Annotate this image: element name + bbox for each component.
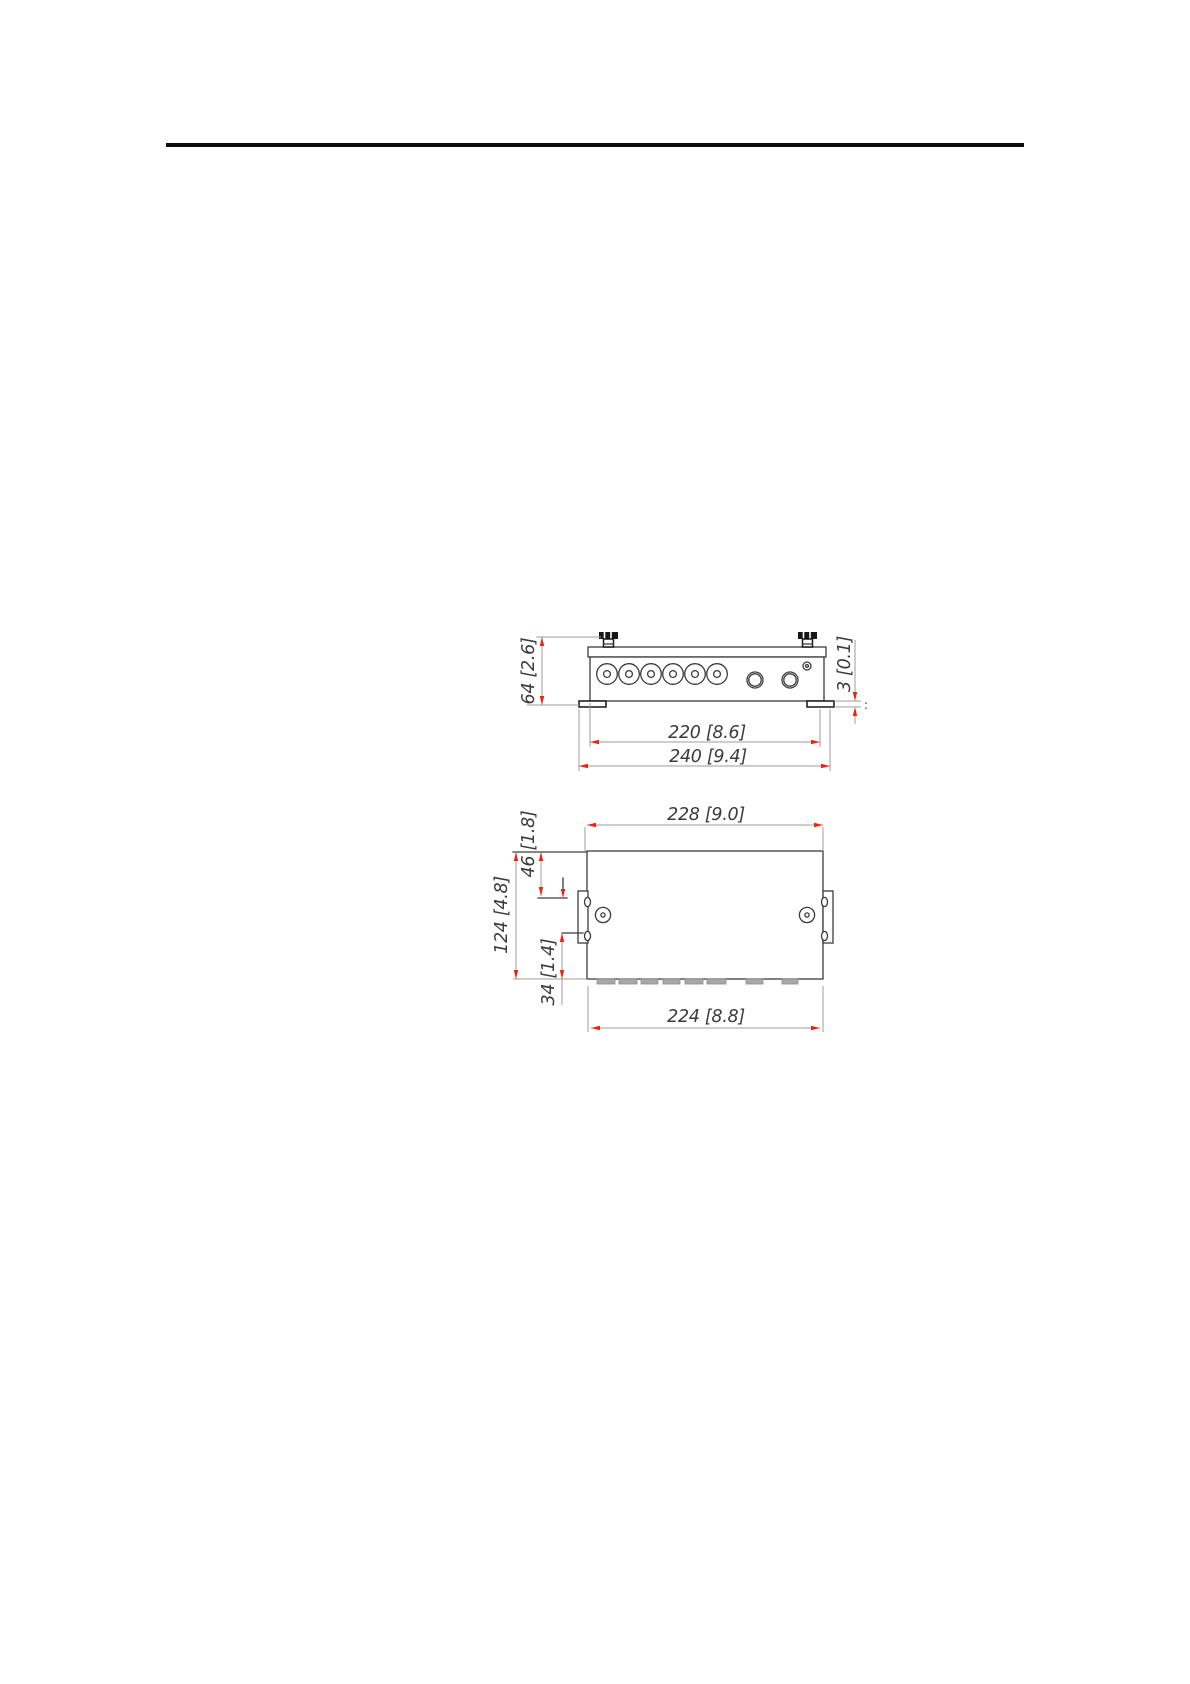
bracket-slot bbox=[822, 931, 828, 940]
tick-mark: : bbox=[864, 698, 868, 712]
thumbscrew-right-icon bbox=[798, 632, 817, 647]
dim-front-width-outer-label: 240 [9.4] bbox=[669, 747, 747, 767]
mounting-foot-right bbox=[807, 701, 834, 707]
bracket-slot bbox=[585, 897, 591, 906]
dim-bottom-width-label: 224 [8.8] bbox=[667, 1007, 745, 1027]
mounting-bracket-left bbox=[578, 891, 591, 943]
mounting-bracket-right bbox=[822, 891, 834, 943]
dim-bottom-width: 224 [8.8] bbox=[588, 986, 823, 1032]
thumbscrew-left-icon bbox=[599, 632, 618, 647]
vent-slots bbox=[597, 979, 798, 984]
dim-flange-thickness-label: 3 [0.1] bbox=[835, 636, 855, 692]
chassis-outline bbox=[587, 851, 823, 979]
top-view: 228 [9.0] 124 [4.8] 46 [1.8] bbox=[492, 805, 833, 1032]
bracket-slot bbox=[822, 897, 828, 906]
dim-bracket-offset-bottom-label: 34 [1.4] bbox=[539, 939, 559, 1006]
dim-front-height-label: 64 [2.6] bbox=[519, 638, 539, 705]
top-rail bbox=[588, 647, 826, 657]
front-view: 64 [2.6] 220 [8.6] 240 [9.4] bbox=[519, 632, 868, 771]
dim-bracket-offset-top: 46 [1.8] bbox=[519, 811, 567, 898]
bracket-slot bbox=[585, 931, 591, 940]
dim-top-width: 228 [9.0] bbox=[585, 805, 823, 851]
technical-drawing: 64 [2.6] 220 [8.6] 240 [9.4] bbox=[0, 0, 1190, 1684]
dim-top-height-label: 124 [4.8] bbox=[492, 876, 512, 954]
dim-bracket-offset-bottom: 34 [1.4] bbox=[539, 933, 583, 1005]
mounting-foot-left bbox=[579, 701, 606, 707]
dim-bracket-offset-top-label: 46 [1.8] bbox=[519, 811, 539, 878]
dim-flange-thickness: 3 [0.1] : bbox=[834, 636, 868, 724]
front-panel bbox=[590, 657, 824, 701]
dim-front-width-inner: 220 [8.6] bbox=[590, 703, 820, 747]
dim-top-width-label: 228 [9.0] bbox=[667, 805, 745, 825]
dim-front-width-inner-label: 220 [8.6] bbox=[668, 723, 746, 743]
manual-page: 64 [2.6] 220 [8.6] 240 [9.4] bbox=[0, 0, 1190, 1684]
